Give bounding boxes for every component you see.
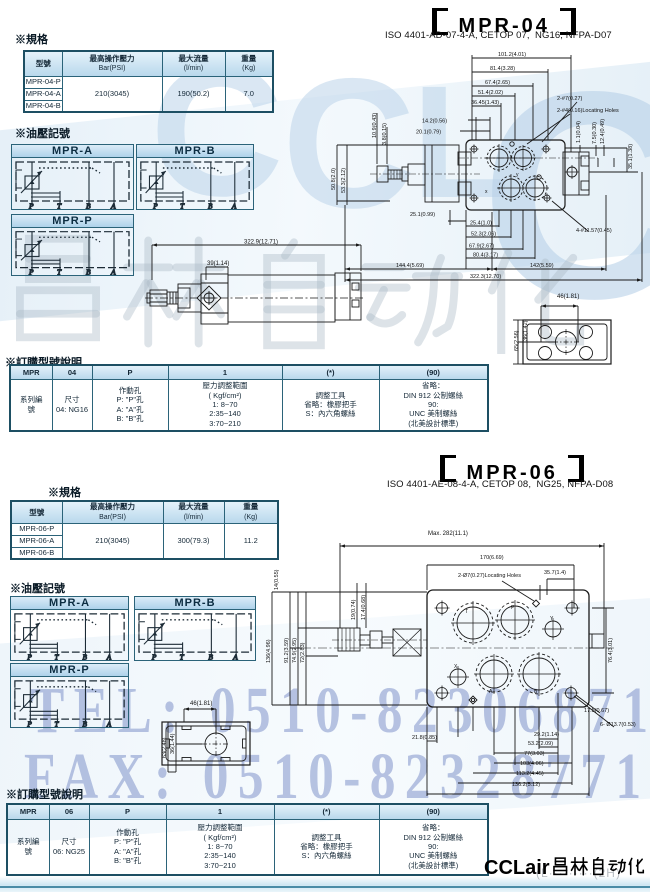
svg-text:2-#4(0.16)Locating Holes: 2-#4(0.16)Locating Holes — [557, 108, 619, 114]
svg-text:53.2(2.09): 53.2(2.09) — [528, 741, 553, 747]
svg-text:72(2.83): 72(2.83) — [300, 642, 306, 663]
svg-text:25.1(0.99): 25.1(0.99) — [410, 212, 435, 218]
svg-text:2-#7(0.27): 2-#7(0.27) — [557, 96, 583, 102]
svg-text:51.4(2.02): 51.4(2.02) — [478, 90, 503, 96]
svg-text:35.1(1.38): 35.1(1.38) — [628, 144, 634, 169]
svg-text:53.3(2.12): 53.3(2.12) — [341, 168, 347, 193]
svg-text:170(6.69): 170(6.69) — [480, 555, 504, 561]
svg-text:1.1(0.04): 1.1(0.04) — [576, 121, 582, 143]
svg-text:65(2.56): 65(2.56) — [514, 330, 520, 351]
svg-text:80.4(3.17): 80.4(3.17) — [473, 253, 498, 259]
svg-text:46(1.81): 46(1.81) — [190, 701, 212, 707]
svg-text:50.8(2.0): 50.8(2.0) — [331, 168, 337, 190]
svg-text:144.4(5.69): 144.4(5.69) — [396, 263, 424, 269]
svg-text:25.4(1.0): 25.4(1.0) — [470, 221, 492, 227]
svg-text:46(1.81): 46(1.81) — [557, 294, 579, 300]
svg-text:12.4(0.49): 12.4(0.49) — [600, 119, 606, 144]
svg-text:101.2(4.01): 101.2(4.01) — [498, 52, 526, 58]
svg-text:113.2(4.45): 113.2(4.45) — [516, 771, 544, 777]
svg-text:10.9(0.43): 10.9(0.43) — [372, 113, 378, 138]
svg-text:Max. 282(11.1): Max. 282(11.1) — [428, 531, 468, 537]
svg-text:21.8(0.85): 21.8(0.85) — [412, 735, 437, 741]
svg-text:14(0.55): 14(0.55) — [274, 569, 280, 590]
svg-text:81.4(3.28): 81.4(3.28) — [490, 66, 515, 72]
svg-text:14.2(0.56): 14.2(0.56) — [422, 119, 447, 125]
svg-text:322.3(12.70): 322.3(12.70) — [470, 274, 501, 280]
svg-text:y: y — [516, 172, 519, 178]
svg-text:103(4.06): 103(4.06) — [520, 761, 544, 767]
svg-text:2-Ø7(0.27)Locating Holes: 2-Ø7(0.27)Locating Holes — [458, 573, 521, 579]
svg-text:142(5.59): 142(5.59) — [530, 263, 554, 269]
svg-text:6- Ø13.7(0.53): 6- Ø13.7(0.53) — [600, 722, 636, 728]
svg-text:91.2(3.59): 91.2(3.59) — [284, 638, 290, 663]
svg-text:4-#11.57(0.45): 4-#11.57(0.45) — [576, 228, 612, 234]
svg-text:36.45(1.43): 36.45(1.43) — [471, 100, 499, 106]
svg-text:76.4(3.01): 76.4(3.01) — [608, 638, 614, 663]
svg-text:322.9(12.71): 322.9(12.71) — [244, 240, 278, 246]
svg-text:67.9(2.67): 67.9(2.67) — [469, 244, 494, 250]
svg-text:136(4.96): 136(4.96) — [266, 639, 272, 663]
svg-text:17.5(0.67): 17.5(0.67) — [584, 708, 609, 714]
svg-text:39(1.14): 39(1.14) — [207, 261, 229, 267]
svg-text:36(1.44): 36(1.44) — [170, 733, 176, 754]
svg-text:136.2(5.12): 136.2(5.12) — [512, 782, 540, 788]
svg-text:x: x — [485, 189, 488, 195]
svg-text:29.2(1.14): 29.2(1.14) — [534, 732, 559, 738]
svg-text:52.3(2.06): 52.3(2.06) — [471, 232, 496, 238]
svg-text:77(3.03): 77(3.03) — [524, 751, 545, 757]
svg-text:19(0.74): 19(0.74) — [351, 599, 357, 620]
svg-text:36(1.42): 36(1.42) — [523, 320, 529, 341]
svg-text:20.1(0.79): 20.1(0.79) — [416, 130, 441, 136]
svg-text:74.9(2.95): 74.9(2.95) — [292, 638, 298, 663]
svg-text:67.4(2.65): 67.4(2.65) — [485, 80, 510, 86]
svg-text:35.7(1.4): 35.7(1.4) — [544, 570, 566, 576]
svg-text:3.8(0.15): 3.8(0.15) — [382, 123, 388, 145]
svg-text:17.4(0.68): 17.4(0.68) — [361, 595, 367, 620]
svg-text:7.5(0.30): 7.5(0.30) — [592, 122, 598, 144]
svg-text:63(2.48): 63(2.48) — [162, 737, 168, 758]
svg-text:T: T — [465, 609, 468, 615]
